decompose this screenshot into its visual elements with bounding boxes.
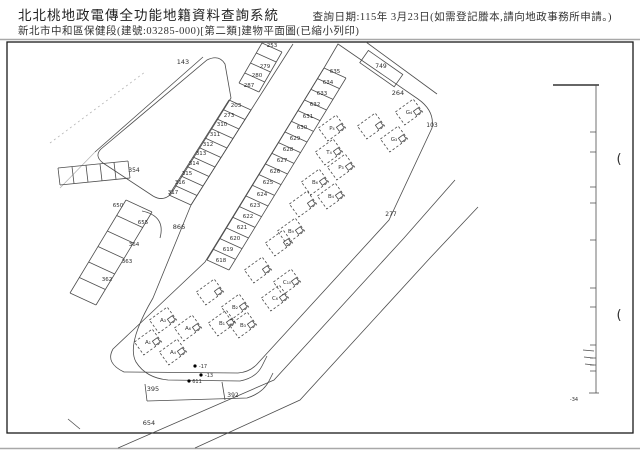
stray-stroke	[68, 419, 80, 429]
parcel-number-label: -34	[570, 397, 578, 403]
parcel-number-label: 273	[224, 113, 235, 119]
parcel-number-label: 203	[231, 103, 242, 109]
parcel-number-label: 623	[250, 203, 261, 209]
parcel-number-label: 866	[173, 223, 185, 231]
parcel-number-label: 627	[277, 158, 288, 164]
parcel-number-label: 364	[129, 242, 140, 248]
parcel-number-label: 287	[244, 83, 255, 89]
parcel-number-label: 316	[175, 180, 186, 186]
central-road	[133, 44, 293, 381]
parcel-number-label: 630	[297, 125, 308, 131]
parcel-number-label: 628	[283, 147, 294, 153]
parcel-number-label: 253	[267, 43, 278, 49]
parcel-number-label: 633	[317, 91, 328, 97]
parcel-strip-360s	[70, 200, 152, 305]
parcel-number-label: 635	[330, 69, 341, 75]
parcel-number-label: 363	[122, 259, 133, 265]
annotation-circle	[193, 364, 196, 367]
building-label: B₃	[240, 323, 246, 329]
road-143-faint-extension	[60, 152, 95, 188]
building-footprint	[196, 279, 223, 305]
development-band-boundary	[111, 44, 433, 373]
building-label: P₃	[338, 165, 344, 171]
parcel-number-label: 362	[102, 277, 113, 283]
parcel-number-label: 654	[143, 419, 155, 427]
ruler-small-marks	[583, 350, 594, 365]
parcel-number-label: 618	[216, 258, 227, 264]
diagonal-road-inner	[118, 180, 455, 448]
building-label: B₂	[232, 305, 238, 311]
parcel-number-label: 395	[147, 385, 159, 393]
parcel-392-divider	[222, 382, 225, 400]
annotation-label: -13	[205, 373, 213, 379]
parcel-number-layer: 1432532792802872032733103113123133143153…	[102, 43, 622, 427]
parcel-strip-310s	[169, 100, 251, 205]
road-143	[95, 57, 203, 152]
building-label: B₉	[288, 229, 294, 235]
parcel-number-label: 314	[189, 161, 200, 167]
parcel-number-label: 312	[203, 142, 214, 148]
building-label: G₃	[391, 137, 397, 143]
parcel-number-label: 354	[128, 167, 140, 174]
parcel-number-label: 620	[230, 236, 241, 242]
parcel-number-label: (	[616, 152, 621, 167]
parcel-number-label: 310	[217, 122, 228, 128]
building-label: A₁	[145, 340, 151, 346]
parcel-number-label: 650	[113, 203, 124, 209]
annotation-layer: -17-13611	[187, 364, 213, 385]
parcel-strip-354	[58, 161, 130, 185]
building-footprint	[244, 257, 271, 283]
print-preview-page: 北北桃地政電傳全功能地籍資料查詢系統 新北市中和區保健段(建號:03285-00…	[0, 0, 640, 453]
annotation-label: -17	[199, 364, 207, 370]
parcel-number-label: 277	[385, 211, 397, 218]
annotation-label: 611	[192, 379, 202, 385]
parcel-number-label: 313	[196, 151, 207, 157]
parcel-number-label: 625	[263, 180, 274, 186]
diagonal-road-outer	[195, 207, 478, 448]
building-label: A₆	[185, 326, 192, 332]
parcel-number-label: 626	[270, 169, 281, 175]
parcel-number-label: 392	[227, 392, 239, 399]
building-footprint	[289, 191, 316, 217]
parcel-number-label: 279	[260, 64, 271, 70]
building-label: A₄	[170, 350, 177, 356]
building-footprints-layer: G₄G₃P₄T₄P₃B₆B₄B₉C₁₀C₆B₂B₃B₁A₆A₃A₄A₁	[134, 99, 422, 365]
building-footprint	[357, 113, 384, 139]
parcel-number-label: 632	[310, 102, 321, 108]
parcel-number-label: 317	[168, 190, 179, 196]
building-label: C₁₀	[283, 280, 292, 286]
parcel-number-label: 621	[237, 225, 248, 231]
ruler-ticks	[590, 132, 596, 371]
annotation-circle	[199, 373, 202, 376]
parcel-number-label: 311	[210, 132, 221, 138]
building-label: T₄	[325, 150, 332, 156]
building-label: A₃	[160, 318, 166, 324]
building-label: B₁	[219, 321, 225, 327]
parcel-number-label: 749	[375, 63, 387, 70]
parcel-number-label: 634	[323, 80, 334, 86]
parcel-number-label: 280	[252, 73, 263, 79]
building-label: B₆	[312, 180, 319, 186]
building-label: B₄	[328, 194, 335, 200]
parcel-number-label: (	[616, 308, 621, 323]
parcel-number-label: 315	[182, 171, 193, 177]
map-frame-border	[7, 42, 633, 433]
building-label: G₄	[406, 110, 413, 116]
parcel-number-label: 264	[392, 89, 404, 97]
parcel-number-label: 631	[303, 114, 314, 120]
faint-boundary-dashed	[50, 72, 145, 143]
parcel-number-label: 143	[177, 58, 189, 66]
building-label: C₆	[272, 296, 279, 302]
parcel-number-label: 624	[257, 192, 268, 198]
parcel-number-label: 103	[426, 122, 438, 129]
parcel-number-label: 622	[243, 214, 254, 220]
parcel-number-label: 629	[290, 136, 301, 142]
parcel-number-label: 655	[138, 220, 149, 226]
parcel-number-label: 619	[223, 247, 234, 253]
cadastral-floor-plan-map: G₄G₃P₄T₄P₃B₆B₄B₉C₁₀C₆B₂B₃B₁A₆A₃A₄A₁ 1432…	[0, 0, 640, 453]
building-label: P₄	[329, 126, 335, 132]
annotation-circle	[187, 379, 190, 382]
